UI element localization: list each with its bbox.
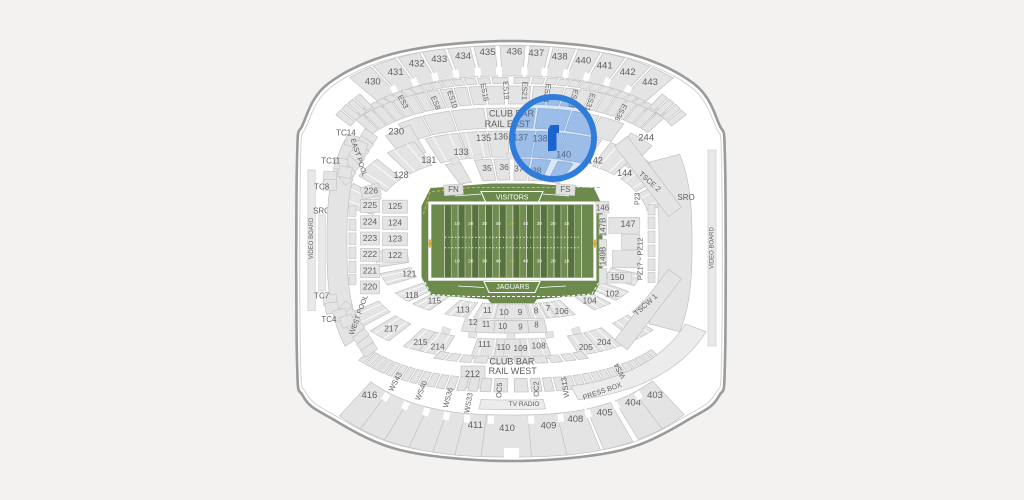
svg-text:144: 144	[617, 168, 632, 178]
svg-text:OC5: OC5	[494, 382, 504, 398]
svg-text:150: 150	[610, 272, 624, 282]
svg-text:SRO: SRO	[677, 193, 694, 202]
svg-text:10: 10	[499, 307, 509, 317]
svg-text:P23: P23	[634, 192, 641, 205]
svg-text:438: 438	[552, 52, 568, 63]
svg-text:30: 30	[537, 258, 543, 263]
svg-text:20: 20	[468, 221, 474, 226]
svg-text:9: 9	[518, 322, 523, 331]
svg-text:411: 411	[468, 420, 483, 431]
svg-text:11: 11	[482, 320, 491, 329]
svg-text:135: 135	[476, 133, 491, 143]
svg-text:147: 147	[620, 219, 635, 229]
svg-text:122: 122	[388, 250, 402, 260]
svg-text:12: 12	[469, 318, 478, 327]
svg-text:10: 10	[455, 258, 461, 263]
svg-text:204: 204	[597, 337, 611, 347]
svg-text:40: 40	[523, 221, 529, 226]
svg-text:PZ17 - PZ12: PZ17 - PZ12	[636, 238, 645, 281]
svg-text:40: 40	[496, 258, 502, 263]
svg-text:10: 10	[498, 322, 507, 331]
svg-text:8: 8	[534, 305, 539, 315]
svg-text:VIDEO BOARD: VIDEO BOARD	[710, 227, 716, 269]
svg-text:410: 410	[499, 423, 515, 434]
svg-text:118: 118	[405, 290, 419, 300]
svg-text:124: 124	[388, 217, 402, 227]
svg-text:ES21: ES21	[520, 81, 530, 100]
svg-text:50: 50	[509, 221, 515, 226]
svg-text:432: 432	[409, 59, 425, 70]
svg-text:CLUB BAR: CLUB BAR	[489, 356, 535, 366]
svg-text:11: 11	[483, 305, 492, 315]
svg-text:433: 433	[431, 54, 447, 65]
svg-text:20: 20	[550, 221, 556, 226]
svg-text:431: 431	[388, 67, 404, 78]
svg-text:215: 215	[413, 337, 427, 347]
svg-text:RAIL WEST: RAIL WEST	[489, 366, 538, 376]
svg-text:VIDEO BOARD: VIDEO BOARD	[309, 217, 315, 259]
svg-text:8: 8	[534, 321, 539, 330]
svg-text:436: 436	[506, 46, 522, 57]
svg-text:109: 109	[513, 343, 527, 353]
svg-text:217: 217	[384, 324, 398, 334]
svg-text:FS: FS	[560, 185, 570, 194]
svg-text:111: 111	[478, 339, 491, 349]
svg-text:TC4: TC4	[321, 315, 337, 324]
svg-text:434: 434	[455, 51, 471, 62]
svg-text:408: 408	[567, 414, 583, 425]
svg-text:20: 20	[550, 258, 556, 263]
svg-text:136: 136	[493, 132, 508, 142]
svg-text:133: 133	[454, 147, 469, 157]
svg-text:TC7: TC7	[314, 291, 330, 300]
svg-text:113: 113	[456, 305, 470, 315]
svg-text:128: 128	[394, 170, 409, 180]
svg-text:146: 146	[596, 204, 610, 213]
svg-text:ES19: ES19	[501, 81, 511, 100]
svg-text:TC11: TC11	[321, 157, 341, 166]
svg-text:30: 30	[482, 258, 488, 263]
svg-text:102: 102	[605, 289, 619, 299]
svg-text:JAGUARS: JAGUARS	[496, 284, 529, 291]
svg-text:220: 220	[363, 282, 377, 292]
svg-text:9: 9	[518, 307, 523, 317]
svg-text:149B: 149B	[598, 247, 607, 266]
svg-text:7: 7	[546, 303, 551, 313]
svg-text:125: 125	[388, 201, 402, 211]
svg-text:205: 205	[579, 342, 593, 352]
svg-text:131: 131	[421, 155, 436, 165]
svg-text:405: 405	[597, 407, 613, 418]
svg-text:35: 35	[482, 163, 492, 173]
svg-text:10: 10	[564, 221, 570, 226]
svg-text:115: 115	[428, 295, 442, 305]
svg-text:TV RADIO: TV RADIO	[509, 401, 540, 408]
svg-text:50: 50	[509, 258, 515, 263]
svg-text:441: 441	[597, 60, 613, 71]
svg-text:244: 244	[638, 132, 654, 143]
svg-text:225: 225	[363, 200, 377, 210]
svg-text:442: 442	[620, 67, 636, 78]
svg-text:223: 223	[363, 233, 377, 243]
svg-text:443: 443	[642, 77, 658, 88]
svg-text:36: 36	[499, 162, 509, 172]
svg-text:106: 106	[555, 306, 569, 316]
svg-text:437: 437	[528, 48, 544, 59]
svg-text:222: 222	[363, 249, 377, 259]
svg-text:110: 110	[497, 342, 511, 352]
svg-text:108: 108	[532, 341, 546, 351]
svg-text:440: 440	[575, 56, 591, 67]
svg-text:121: 121	[402, 268, 416, 278]
svg-text:40: 40	[523, 258, 529, 263]
svg-text:435: 435	[480, 47, 496, 58]
svg-text:123: 123	[388, 234, 402, 244]
svg-text:104: 104	[583, 295, 597, 305]
svg-text:30: 30	[537, 221, 543, 226]
svg-text:FN: FN	[448, 185, 459, 194]
svg-text:10: 10	[564, 258, 570, 263]
svg-text:416: 416	[361, 390, 377, 401]
svg-text:TC8: TC8	[314, 182, 330, 191]
svg-text:403: 403	[647, 390, 663, 401]
svg-text:30: 30	[482, 221, 488, 226]
svg-text:214: 214	[431, 341, 445, 351]
svg-text:147B: 147B	[598, 218, 607, 237]
svg-text:20: 20	[468, 258, 474, 263]
svg-text:224: 224	[363, 216, 377, 226]
svg-text:226: 226	[364, 186, 378, 196]
svg-text:OC2: OC2	[532, 381, 542, 397]
svg-text:10: 10	[455, 221, 461, 226]
svg-text:430: 430	[365, 77, 381, 88]
svg-text:TC14: TC14	[336, 129, 356, 138]
svg-text:VISITORS: VISITORS	[496, 194, 529, 201]
svg-text:221: 221	[363, 265, 377, 275]
svg-text:409: 409	[541, 421, 557, 432]
svg-text:40: 40	[496, 221, 502, 226]
svg-text:230: 230	[388, 126, 404, 137]
